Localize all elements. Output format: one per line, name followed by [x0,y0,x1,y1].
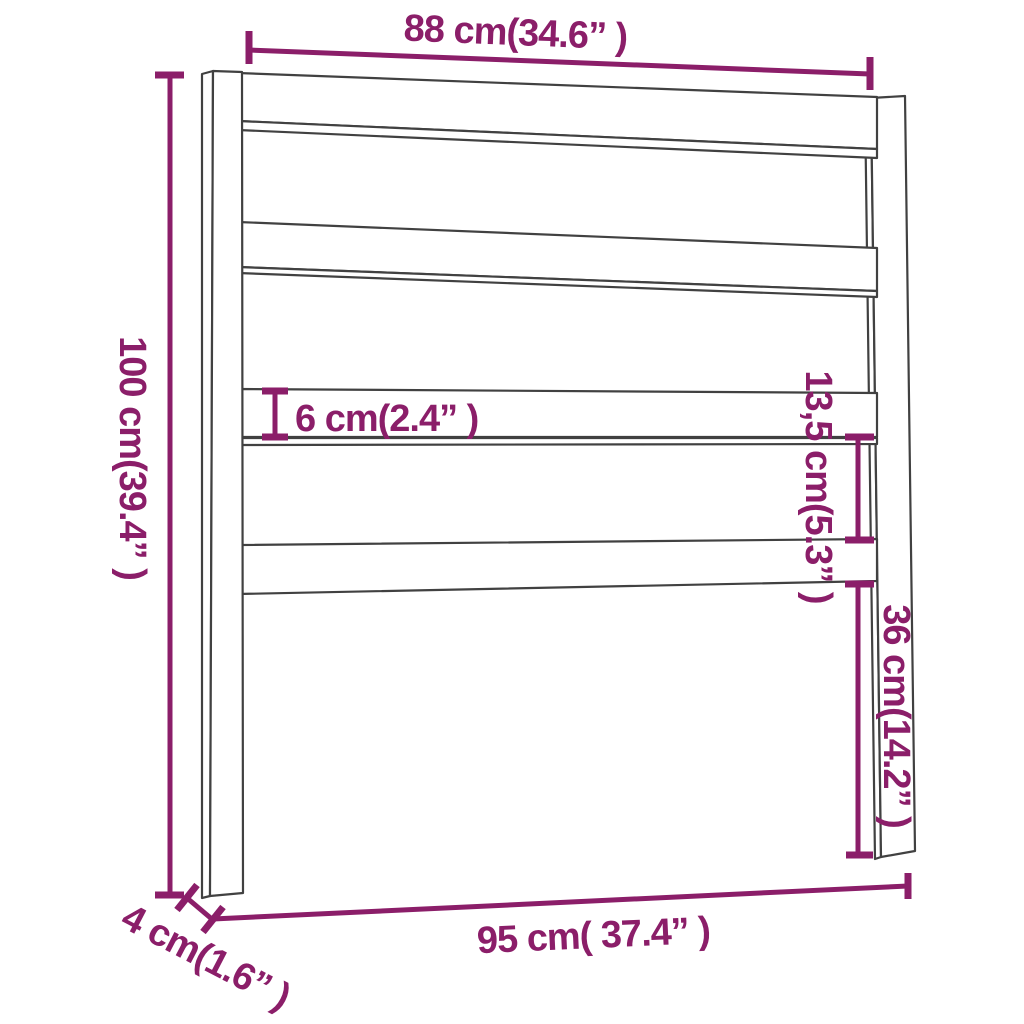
left-post-front-face [210,71,243,896]
dim-bottom-width-line [213,886,908,919]
dim-post-depth-line [187,898,213,920]
headboard-dimension-diagram: 88 cm(34.6” ) 100 cm(39.4” ) 6 cm(2.4” )… [0,0,1024,1024]
dim-top-width-label: 88 cm(34.6” ) [403,8,628,59]
dim-overall-height-label: 100 cm(39.4” ) [111,336,153,580]
dim-overall-height [155,75,184,895]
dimension-annotations [155,31,908,932]
dim-bottom-width-label: 95 cm( 37.4” ) [476,910,711,963]
dim-slat-gap-label: 13,5 cm(5.3” ) [797,370,839,603]
dim-slat-height-label: 6 cm(2.4” ) [295,398,478,440]
dim-bottom-width [213,873,908,919]
slat-4 [238,539,877,594]
dim-lower-section [845,584,874,855]
diagram-svg: 88 cm(34.6” ) 100 cm(39.4” ) 6 cm(2.4” )… [0,0,1024,1024]
dim-lower-section-label: 36 cm(14.2” ) [875,604,917,828]
